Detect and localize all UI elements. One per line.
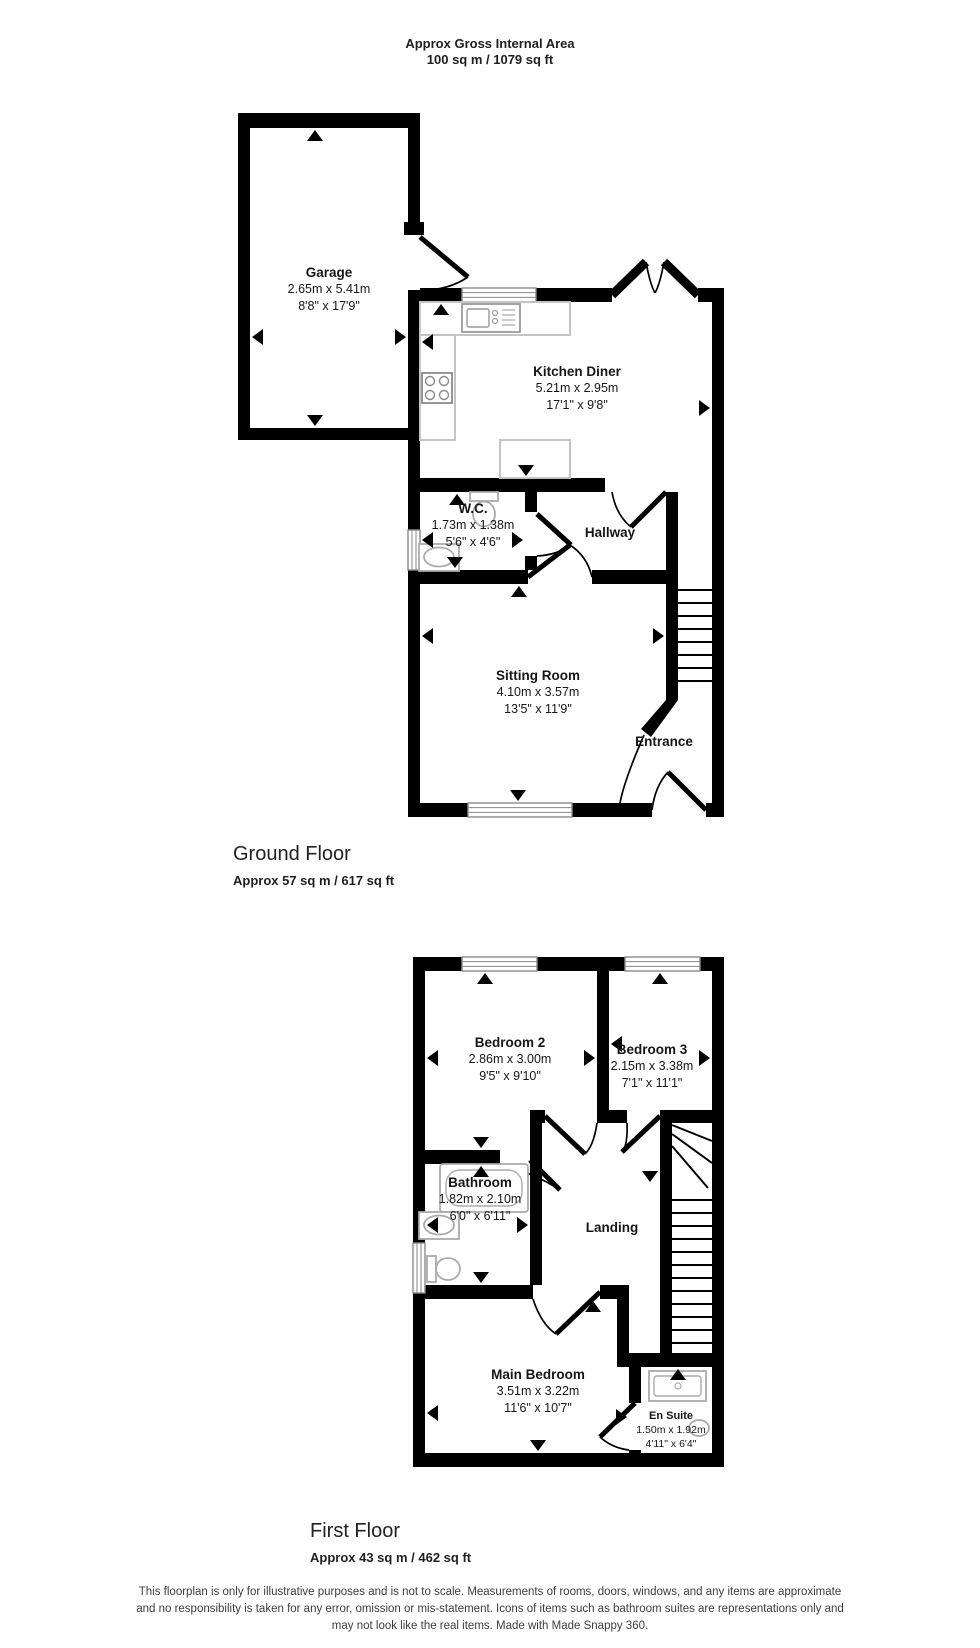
bedroom2-door-icon xyxy=(545,1116,597,1154)
sitting-room-window-icon xyxy=(468,803,572,817)
front-door-icon xyxy=(652,772,706,810)
staircase-icon xyxy=(672,1125,712,1343)
room-label-bedroom-3: Bedroom 3 2.15m x 3.38m 7'1" x 11'1" xyxy=(611,1041,694,1092)
room-label-main-bedroom: Main Bedroom 3.51m x 3.22m 11'6" x 10'7" xyxy=(491,1366,585,1417)
first-floor-area: Approx 43 sq m / 462 sq ft xyxy=(310,1550,471,1565)
first-floor-label: First Floor xyxy=(310,1520,471,1543)
ground-floor-area: Approx 57 sq m / 617 sq ft xyxy=(233,873,394,888)
room-label-en-suite: En Suite 1.50m x 1.92m 4'11" x 6'4" xyxy=(636,1409,705,1451)
main-bedroom-door-icon xyxy=(533,1292,600,1334)
ground-floor-title: Ground Floor Approx 57 sq m / 617 sq ft xyxy=(233,843,394,888)
staircase-icon xyxy=(678,590,712,681)
measurement-arrows xyxy=(252,130,710,801)
ensuite-door-icon xyxy=(600,1403,635,1450)
room-label-entrance: Entrance xyxy=(635,733,693,750)
gross-internal-area-value: 100 sq m / 1079 sq ft xyxy=(0,52,980,68)
room-label-wc: W.C. 1.73m x 1.38m 5'6" x 4'6" xyxy=(432,500,515,551)
plan-header: Approx Gross Internal Area 100 sq m / 10… xyxy=(0,36,980,68)
bedroom2-window-icon xyxy=(462,957,537,971)
kitchen-window-icon xyxy=(462,288,536,302)
ground-floor-label: Ground Floor xyxy=(233,843,394,866)
room-label-landing: Landing xyxy=(586,1219,639,1236)
disclaimer-text: This floorplan is only for illustrative … xyxy=(0,1584,980,1635)
bedroom3-door-icon xyxy=(622,1116,660,1152)
floorplan-canvas xyxy=(0,0,980,1648)
room-label-kitchen-diner: Kitchen Diner 5.21m x 2.95m 17'1" x 9'8" xyxy=(533,363,621,414)
room-label-sitting-room: Sitting Room 4.10m x 3.57m 13'5" x 11'9" xyxy=(496,667,580,718)
room-label-garage: Garage 2.65m x 5.41m 8'8" x 17'9" xyxy=(288,264,371,315)
bathroom-toilet-icon xyxy=(427,1256,460,1282)
walls xyxy=(238,113,724,817)
garage-door-icon xyxy=(420,237,468,290)
gross-internal-area-title: Approx Gross Internal Area xyxy=(0,36,980,52)
kitchen-sink-icon xyxy=(462,304,520,332)
french-doors-icon xyxy=(646,262,664,293)
first-floor-title: First Floor Approx 43 sq m / 462 sq ft xyxy=(310,1520,471,1565)
hob-icon xyxy=(422,373,452,403)
room-label-bedroom-2: Bedroom 2 2.86m x 3.00m 9'5" x 9'10" xyxy=(469,1034,552,1085)
room-label-bathroom: Bathroom 1.82m x 2.10m 6'0" x 6'11" xyxy=(439,1174,522,1225)
sitting-room-door-icon xyxy=(528,545,592,577)
bedroom3-window-icon xyxy=(625,957,700,971)
ground-floor-plan xyxy=(238,113,724,817)
kitchen-hall-door-icon xyxy=(612,492,666,527)
bathroom-window-icon xyxy=(413,1243,425,1293)
room-label-hallway: Hallway xyxy=(585,524,635,541)
